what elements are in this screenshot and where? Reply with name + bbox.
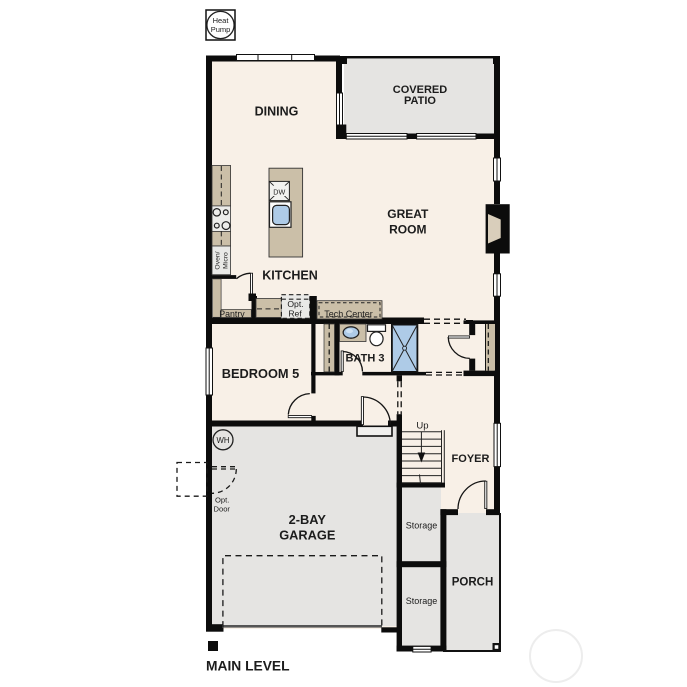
svg-text:2-BAY: 2-BAY xyxy=(289,512,327,527)
svg-text:Tech Center: Tech Center xyxy=(324,309,373,319)
svg-text:Opt.: Opt. xyxy=(215,496,229,505)
svg-text:Storage: Storage xyxy=(406,521,438,531)
svg-text:FOYER: FOYER xyxy=(452,453,490,465)
svg-text:DW: DW xyxy=(273,188,285,197)
svg-text:WH: WH xyxy=(217,436,230,445)
svg-text:Pantry: Pantry xyxy=(219,309,245,319)
svg-text:Oven/: Oven/ xyxy=(214,251,221,269)
svg-text:Heat: Heat xyxy=(213,16,230,25)
svg-text:ROOM: ROOM xyxy=(389,222,426,236)
svg-text:DINING: DINING xyxy=(255,105,299,119)
svg-text:GREAT: GREAT xyxy=(387,207,429,221)
svg-text:PATIO: PATIO xyxy=(404,95,436,107)
svg-text:PORCH: PORCH xyxy=(452,576,494,588)
svg-text:Pump: Pump xyxy=(211,25,231,34)
svg-text:MAIN LEVEL: MAIN LEVEL xyxy=(206,659,290,674)
svg-text:GARAGE: GARAGE xyxy=(279,528,336,543)
svg-text:Storage: Storage xyxy=(406,596,438,606)
svg-text:BEDROOM 5: BEDROOM 5 xyxy=(222,366,300,381)
svg-text:Door: Door xyxy=(214,505,231,514)
svg-text:BATH 3: BATH 3 xyxy=(346,353,385,365)
svg-text:Micro: Micro xyxy=(222,252,229,269)
svg-text:Ref: Ref xyxy=(288,308,302,318)
svg-text:Up: Up xyxy=(416,421,428,432)
svg-text:KITCHEN: KITCHEN xyxy=(262,269,318,283)
